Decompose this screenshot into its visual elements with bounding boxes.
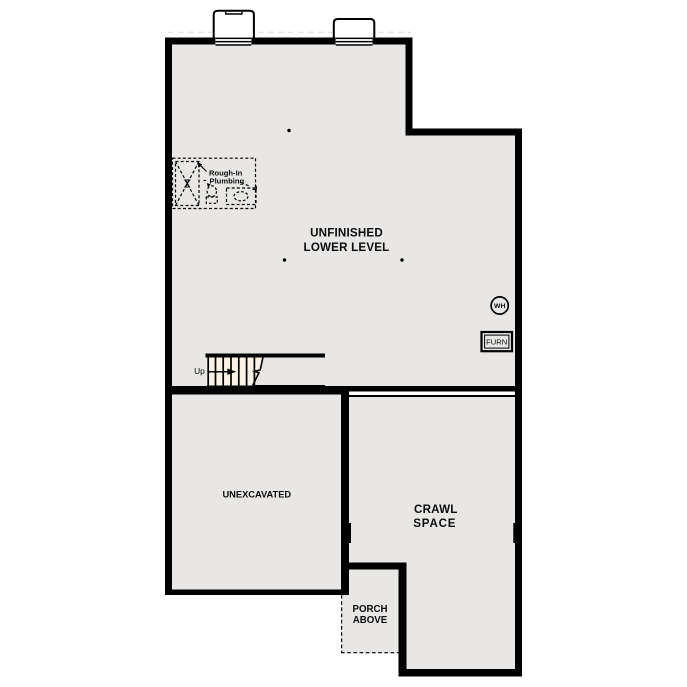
- svg-text:UNFINISHED: UNFINISHED: [310, 227, 383, 240]
- svg-text:Plumbing: Plumbing: [210, 177, 245, 186]
- svg-text:WH: WH: [494, 303, 505, 310]
- svg-text:ABOVE: ABOVE: [353, 615, 388, 626]
- svg-text:FURN: FURN: [486, 337, 507, 346]
- svg-text:Up: Up: [194, 366, 205, 376]
- svg-text:LOWER LEVEL: LOWER LEVEL: [304, 241, 390, 254]
- svg-text:SPACE: SPACE: [413, 517, 456, 530]
- svg-text:CRAWL: CRAWL: [414, 503, 458, 516]
- svg-text:UNEXCAVATED: UNEXCAVATED: [222, 490, 291, 500]
- svg-text:PORCH: PORCH: [353, 604, 388, 615]
